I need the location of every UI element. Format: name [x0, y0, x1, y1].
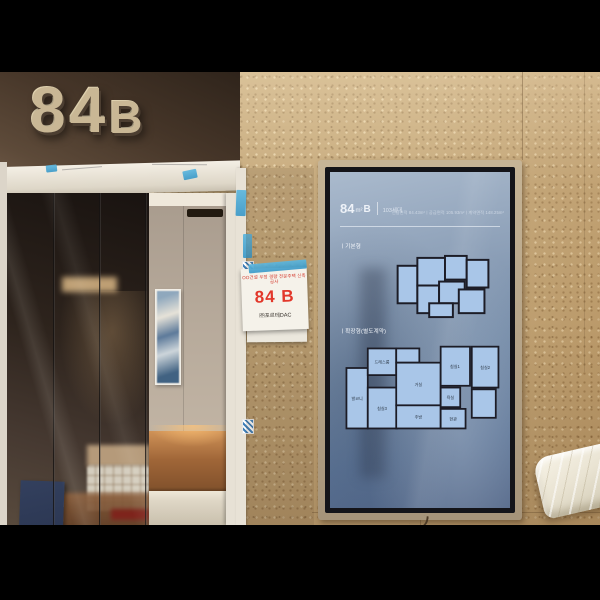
unit-sign-number: 84: [30, 82, 109, 138]
door-track-slot: [187, 209, 223, 217]
hall-ceiling: [149, 193, 236, 206]
section-label-extended: ㅣ확장형(별도계약): [340, 327, 386, 335]
room-label-bed3: 침실3: [377, 405, 388, 411]
paper-unit-sign: OO건설 우정 경량 전문주택 신축공사 84 B ㈜포르테DAC: [241, 263, 314, 349]
left-wall-edge: [0, 162, 7, 525]
paper-sheet: OO건설 우정 경량 전문주택 신축공사 84 B ㈜포르테DAC: [241, 267, 309, 331]
room-label-balcony: 발코니: [351, 395, 363, 401]
wall-panel-line: [183, 206, 184, 431]
screen-area-value: 84: [340, 202, 354, 215]
floorplan-small: [388, 250, 500, 324]
title-divider: [377, 202, 378, 215]
wall-seam-vertical-right: [584, 72, 585, 372]
room-label-entry: 현관: [449, 415, 457, 421]
header-underline: [340, 226, 500, 227]
room-label-kitchen: 주방: [415, 414, 423, 420]
floor-light-glow: [149, 425, 236, 447]
entry-hallway: [149, 193, 236, 525]
room-label-bed1: 침실1: [450, 363, 461, 369]
pencil-marks: [62, 166, 102, 170]
entry-step-platform: [149, 491, 236, 525]
company-name-text: ㈜포르테DAC: [242, 310, 308, 320]
floorplan-large: 거실 주방 침실1 침실2 침실3 발코니 현관 욕실 드레스룸: [342, 338, 502, 438]
door-jamb-right: [226, 193, 236, 525]
mirror-light-streaks: [7, 193, 149, 525]
floorplan-kiosk-display: 84 m² B 103세대 전용면적 84.43m²ㅣ공급면적 105.93m²…: [318, 160, 522, 520]
room-label-bed2: 침실2: [480, 364, 491, 370]
mirror-panels: [7, 193, 149, 525]
unit-code-text: 84 B: [241, 286, 308, 308]
artwork-abstract: [157, 291, 179, 383]
project-name-text: OO건설 우정 경량 전문주택 신축공사: [241, 274, 307, 286]
screen-cable: [409, 514, 429, 525]
room-label-dress: 드레스룸: [374, 359, 389, 365]
unit-sign-3d: 84 B: [30, 82, 146, 138]
screen-glass: 84 m² B 103세대 전용면적 84.43m²ㅣ공급면적 105.93m²…: [330, 172, 510, 508]
pencil-marks: [152, 164, 207, 165]
screen-type-letter: B: [363, 205, 370, 215]
section-label-basic: ㅣ기본형: [340, 242, 361, 250]
area-specs-line: 전용면적 84.43m²ㅣ공급면적 105.93m²ㅣ계약면적 148.25m²: [392, 210, 504, 216]
unit-sign-letter: B: [109, 97, 146, 138]
photo-model-house-entrance: 84 B: [0, 72, 600, 525]
framed-artwork: [155, 289, 181, 385]
wall-seam-vertical-top: [522, 72, 523, 160]
room-label-living: 거실: [415, 381, 423, 387]
room-label-bath: 욕실: [447, 394, 455, 400]
screen-area-unit: m²: [355, 208, 362, 214]
blue-tape: [236, 190, 247, 216]
blue-tape: [46, 164, 58, 172]
